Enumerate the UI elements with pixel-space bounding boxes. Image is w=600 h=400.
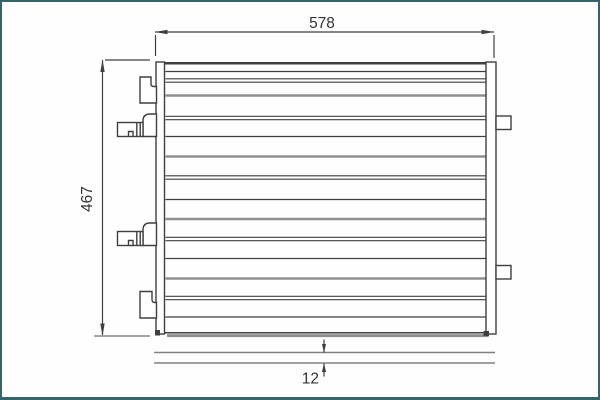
dim-width-arrow-right [482, 30, 495, 34]
dim-thickness-label: 12 [302, 371, 319, 388]
right-tab-lower [496, 266, 511, 280]
dim-height-label: 467 [79, 186, 96, 212]
drawing-page: 578 467 12 [0, 0, 600, 400]
right-tab-upper [496, 116, 511, 130]
left-pipe-connector-lower [118, 223, 157, 246]
right-header-tank [486, 62, 496, 334]
core-lines [166, 72, 487, 318]
dim-thickness-arrow-up [322, 364, 326, 373]
left-pipe-connector-upper [118, 114, 157, 137]
right-foot-mark [484, 331, 490, 336]
dim-height-arrow-bottom [100, 324, 104, 337]
left-foot-mark [155, 330, 160, 336]
condenser-technical-drawing: 578 467 12 [2, 2, 600, 400]
left-header-tank [156, 62, 165, 334]
dim-width-label: 578 [309, 15, 335, 32]
dim-width-arrow-left [155, 30, 168, 34]
left-bracket-top [140, 77, 157, 103]
dim-thickness-arrow-down [322, 344, 326, 353]
dim-height-arrow-top [100, 60, 104, 73]
condenser-body [118, 62, 512, 363]
left-bracket-bottom [140, 292, 157, 319]
dimension-width: 578 [155, 15, 494, 58]
